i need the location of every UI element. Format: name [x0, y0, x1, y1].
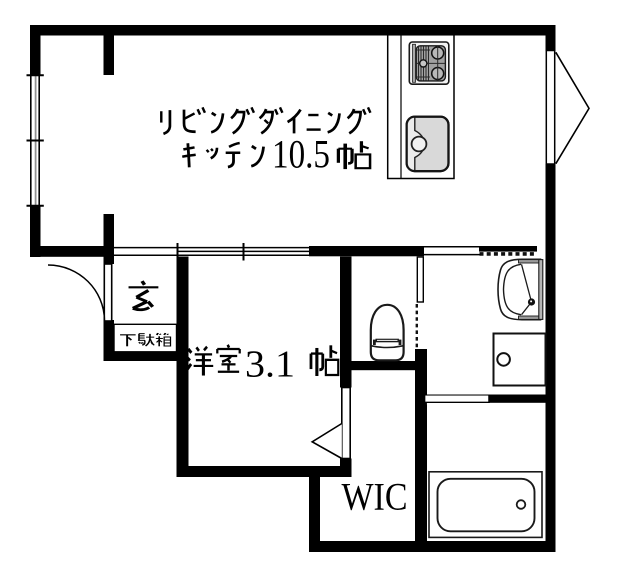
- svg-text:WIC: WIC: [342, 476, 408, 519]
- svg-text:10.5: 10.5: [272, 132, 330, 177]
- svg-text:3.1: 3.1: [245, 344, 295, 386]
